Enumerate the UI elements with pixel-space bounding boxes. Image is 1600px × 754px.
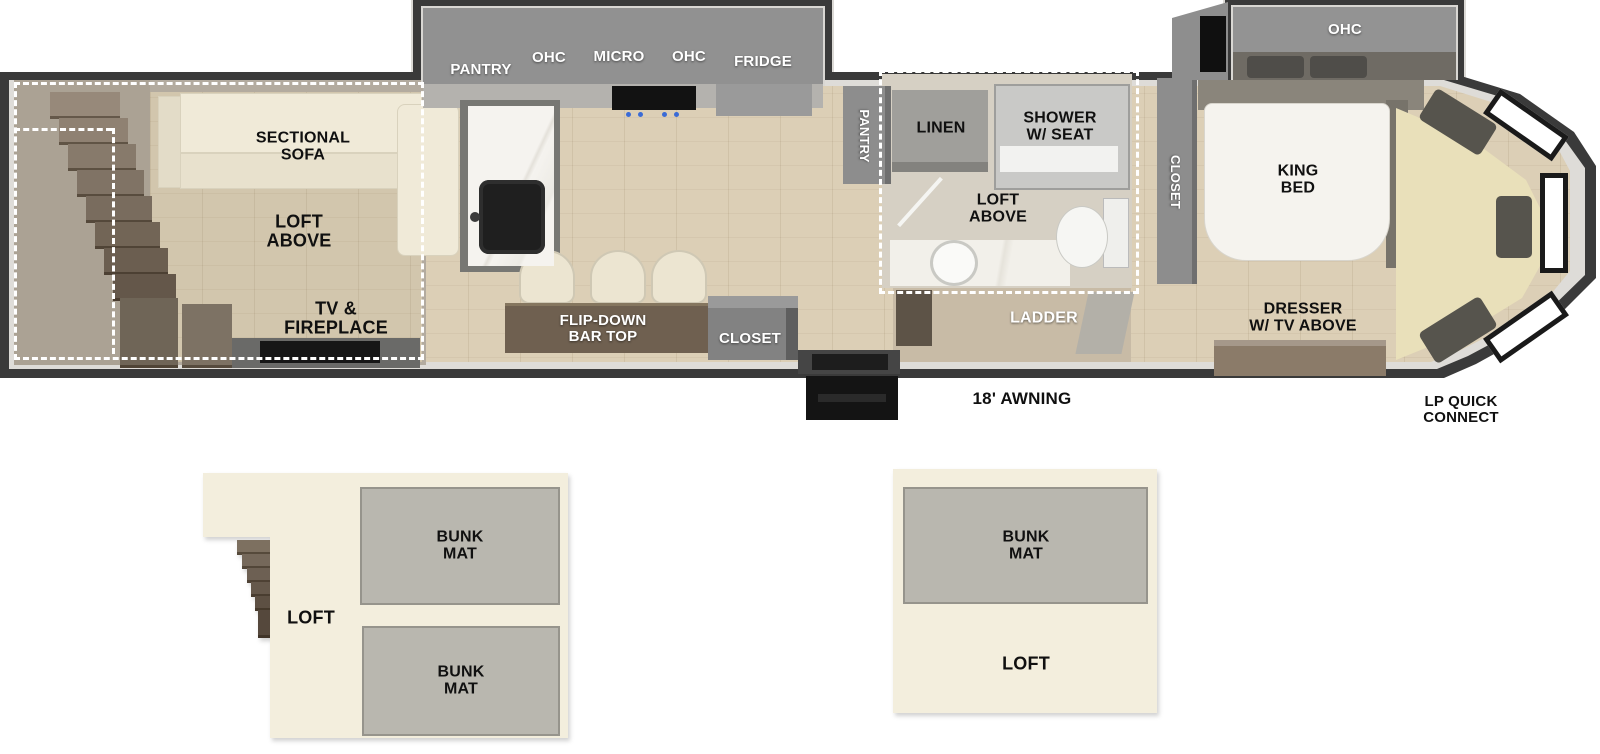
label-king-bed: KING BED: [1278, 163, 1319, 198]
pillow: [1247, 56, 1304, 78]
label-loft-right: LOFT: [1002, 654, 1050, 673]
faucet: [470, 212, 480, 222]
label-bedroom-ohc: OHC: [1328, 22, 1362, 38]
loft-outline-horizontal: [14, 128, 112, 131]
front-window: [1540, 173, 1568, 273]
label-ladder: LADDER: [1010, 309, 1078, 326]
label-fridge: FRIDGE: [734, 54, 792, 70]
label-bath-loft-above: LOFT ABOVE: [969, 192, 1027, 227]
entry-doormat: [812, 354, 888, 370]
loft-outline-vertical: [112, 128, 115, 354]
label-bunk-mat-right: BUNK MAT: [1002, 529, 1049, 564]
label-sectional-sofa: SECTIONAL SOFA: [256, 130, 350, 165]
label-bedroom-closet: CLOSET: [1168, 155, 1182, 209]
label-pantry-vertical: PANTRY: [857, 109, 871, 162]
front-cap-cushion: [1496, 196, 1532, 258]
cooktop: [612, 86, 696, 110]
label-ohc-left: OHC: [532, 50, 566, 66]
loft-plan-right: BUNK MAT LOFT: [890, 466, 1160, 716]
label-micro: MICRO: [594, 49, 645, 65]
bedroom-corner-tv: [1200, 16, 1226, 72]
entry-step-edge: [818, 394, 886, 402]
label-awning: 18' AWNING: [973, 390, 1072, 408]
label-living-loft-above: LOFT ABOVE: [266, 213, 331, 252]
cooktop-knob: [626, 112, 631, 117]
fridge-cabinet: [716, 84, 812, 116]
label-flip-down-bar: FLIP-DOWN BAR TOP: [560, 313, 647, 345]
loft-plan-left: LOFT BUNK MAT BUNK MAT: [196, 460, 576, 750]
dresser: [1214, 340, 1386, 376]
label-mid-closet: CLOSET: [719, 331, 781, 347]
pillow: [1310, 56, 1367, 78]
label-pantry: PANTRY: [450, 62, 511, 78]
label-tv-fireplace: TV & FIREPLACE: [284, 300, 388, 339]
label-lp-quick-connect: LP QUICK CONNECT: [1423, 394, 1499, 426]
rv-floorplan: SECTIONAL SOFA LOFT ABOVE TV & FIREPLACE…: [0, 0, 1600, 754]
ladder-cabinet: [896, 290, 932, 346]
mid-closet-side: [786, 308, 798, 360]
bar-stool: [590, 250, 646, 304]
label-ohc-right: OHC: [672, 49, 706, 65]
label-loft-left: LOFT: [287, 608, 335, 627]
label-dresser: DRESSER W/ TV ABOVE: [1249, 301, 1356, 336]
bar-stool: [651, 250, 707, 304]
label-shower: SHOWER W/ SEAT: [1023, 110, 1096, 145]
bath-slide-outline: [879, 70, 1139, 294]
cooktop-knob: [638, 112, 643, 117]
cooktop-knob: [662, 112, 667, 117]
label-bunk-mat-top: BUNK MAT: [436, 529, 483, 564]
kitchen-sink: [479, 180, 545, 254]
cooktop-knob: [674, 112, 679, 117]
label-linen: LINEN: [917, 119, 966, 136]
label-bunk-mat-bottom: BUNK MAT: [437, 664, 484, 699]
